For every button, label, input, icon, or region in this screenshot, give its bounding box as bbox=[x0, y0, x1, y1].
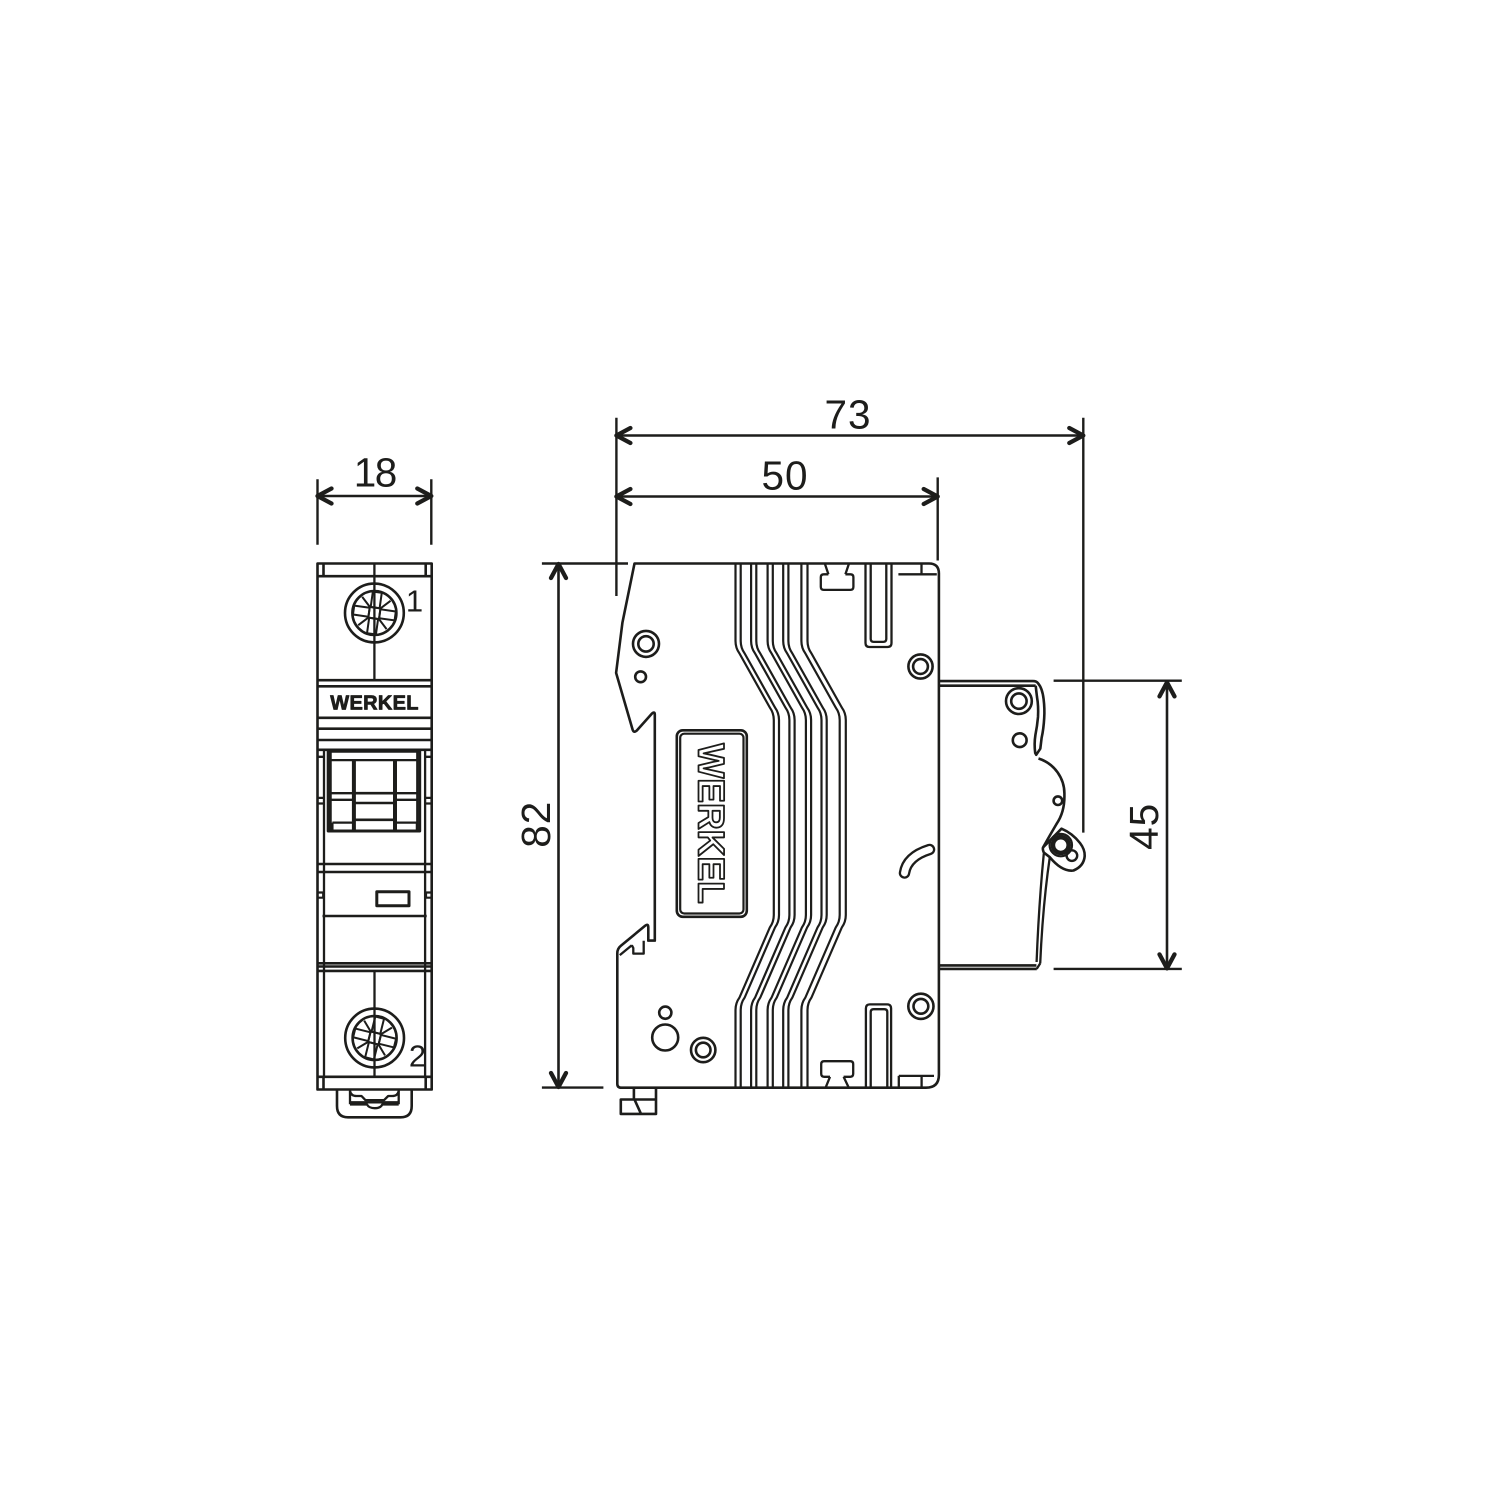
svg-text:18: 18 bbox=[354, 450, 396, 496]
svg-text:50: 50 bbox=[761, 453, 808, 499]
svg-text:WERKEL: WERKEL bbox=[330, 692, 418, 714]
svg-text:2: 2 bbox=[409, 1039, 426, 1074]
svg-text:WERKEL: WERKEL bbox=[691, 743, 732, 903]
svg-text:1: 1 bbox=[406, 584, 423, 619]
svg-text:82: 82 bbox=[513, 801, 559, 848]
svg-text:45: 45 bbox=[1121, 803, 1167, 850]
svg-text:73: 73 bbox=[824, 392, 871, 438]
